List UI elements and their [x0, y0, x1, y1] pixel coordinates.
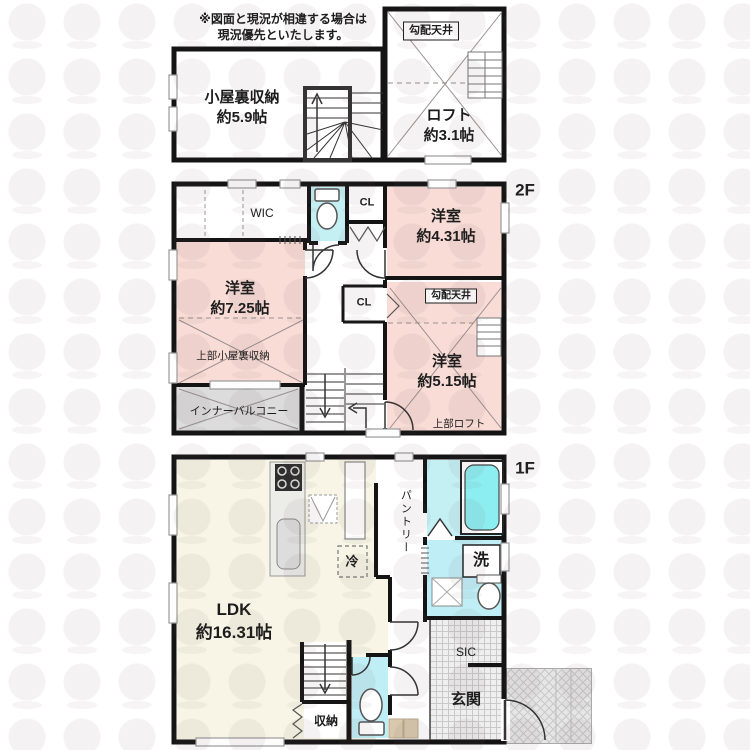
notice-line2: 現況優先といたします。: [199, 27, 367, 43]
attic-storage-size: 約5.9帖: [204, 108, 279, 128]
kitchen-counter: [270, 462, 305, 576]
attic-stairs: [305, 88, 383, 160]
floorplan-canvas: ※図面と現況が相違する場合は 現況優先といたします。 勾配天井 小屋裏収納 約5…: [0, 0, 750, 750]
ldk-size: 約16.31帖: [196, 622, 273, 645]
floorplan-linework: [0, 0, 750, 750]
f1-stairs: [304, 644, 346, 695]
loft-size: 約3.1帖: [424, 126, 475, 146]
bedroom-515-label: 洋室 約5.15帖: [417, 352, 476, 393]
floor-label-1f: 1F: [515, 458, 535, 481]
f2-stairs: [306, 368, 384, 431]
bedroom-431-name: 洋室: [416, 207, 475, 227]
attic-sloped-ceiling-label: 勾配天井: [403, 22, 459, 41]
fridge-label: 冷: [345, 553, 358, 571]
attic-storage-label: 小屋裏収納 約5.9帖: [204, 88, 279, 129]
f2-toilet-icon: [315, 189, 339, 229]
f2-loft-ladder-icon: [477, 318, 501, 356]
ldk-label: LDK 約16.31帖: [196, 599, 273, 645]
storage-label: 収納: [314, 713, 338, 729]
ldk-name: LDK: [196, 599, 273, 622]
notice-text: ※図面と現況が相違する場合は 現況優先といたします。: [199, 11, 367, 43]
bedroom-431-label: 洋室 約4.31帖: [416, 207, 475, 248]
loft-label: ロフト 約3.1帖: [424, 106, 475, 147]
wic-label: WIC: [250, 205, 273, 221]
f2-sloped-ceiling-label: 勾配天井: [425, 289, 477, 304]
bath-fold-door: [428, 519, 452, 536]
storage-fold-door: [293, 704, 302, 738]
bathtub-icon: [428, 461, 503, 536]
upper-loft-label: 上部ロフト: [433, 417, 486, 431]
loft-ladder-icon: [468, 52, 502, 98]
bedroom-515-size: 約5.15帖: [417, 372, 476, 392]
entrance-label: 玄関: [451, 690, 481, 710]
bedroom-725-size: 約7.25帖: [210, 299, 269, 319]
cupboard-icon: [345, 462, 365, 539]
f1-toilet-icon: [359, 689, 384, 735]
porch-joints: [556, 668, 571, 742]
inner-balcony-label: インナーバルコニー: [190, 405, 289, 420]
entrance-step-stones: [389, 719, 418, 738]
laundry-label: 洗: [473, 550, 489, 572]
attic-storage-name: 小屋裏収納: [204, 88, 279, 108]
notice-line1: ※図面と現況が相違する場合は: [199, 11, 367, 27]
cl-mid-label: CL: [357, 296, 372, 311]
f2-door-arcs: [305, 245, 413, 430]
sic-label: SIC: [456, 644, 476, 660]
basin-back: [477, 575, 501, 583]
loft-name: ロフト: [424, 106, 475, 126]
kitchen-sink-icon: [277, 519, 300, 569]
bedroom-431-size: 約4.31帖: [416, 227, 475, 247]
pantry-label: パントリー: [398, 490, 413, 555]
floor-label-2f: 2F: [515, 180, 535, 203]
bedroom-725-label: 洋室 約7.25帖: [210, 279, 269, 320]
bedroom-725-name: 洋室: [210, 279, 269, 299]
upper-attic-storage-label: 上部小屋裏収納: [196, 349, 270, 363]
cl-top-label: CL: [360, 196, 375, 211]
basin-icon: [478, 583, 500, 609]
bedroom-515-name: 洋室: [417, 352, 476, 372]
